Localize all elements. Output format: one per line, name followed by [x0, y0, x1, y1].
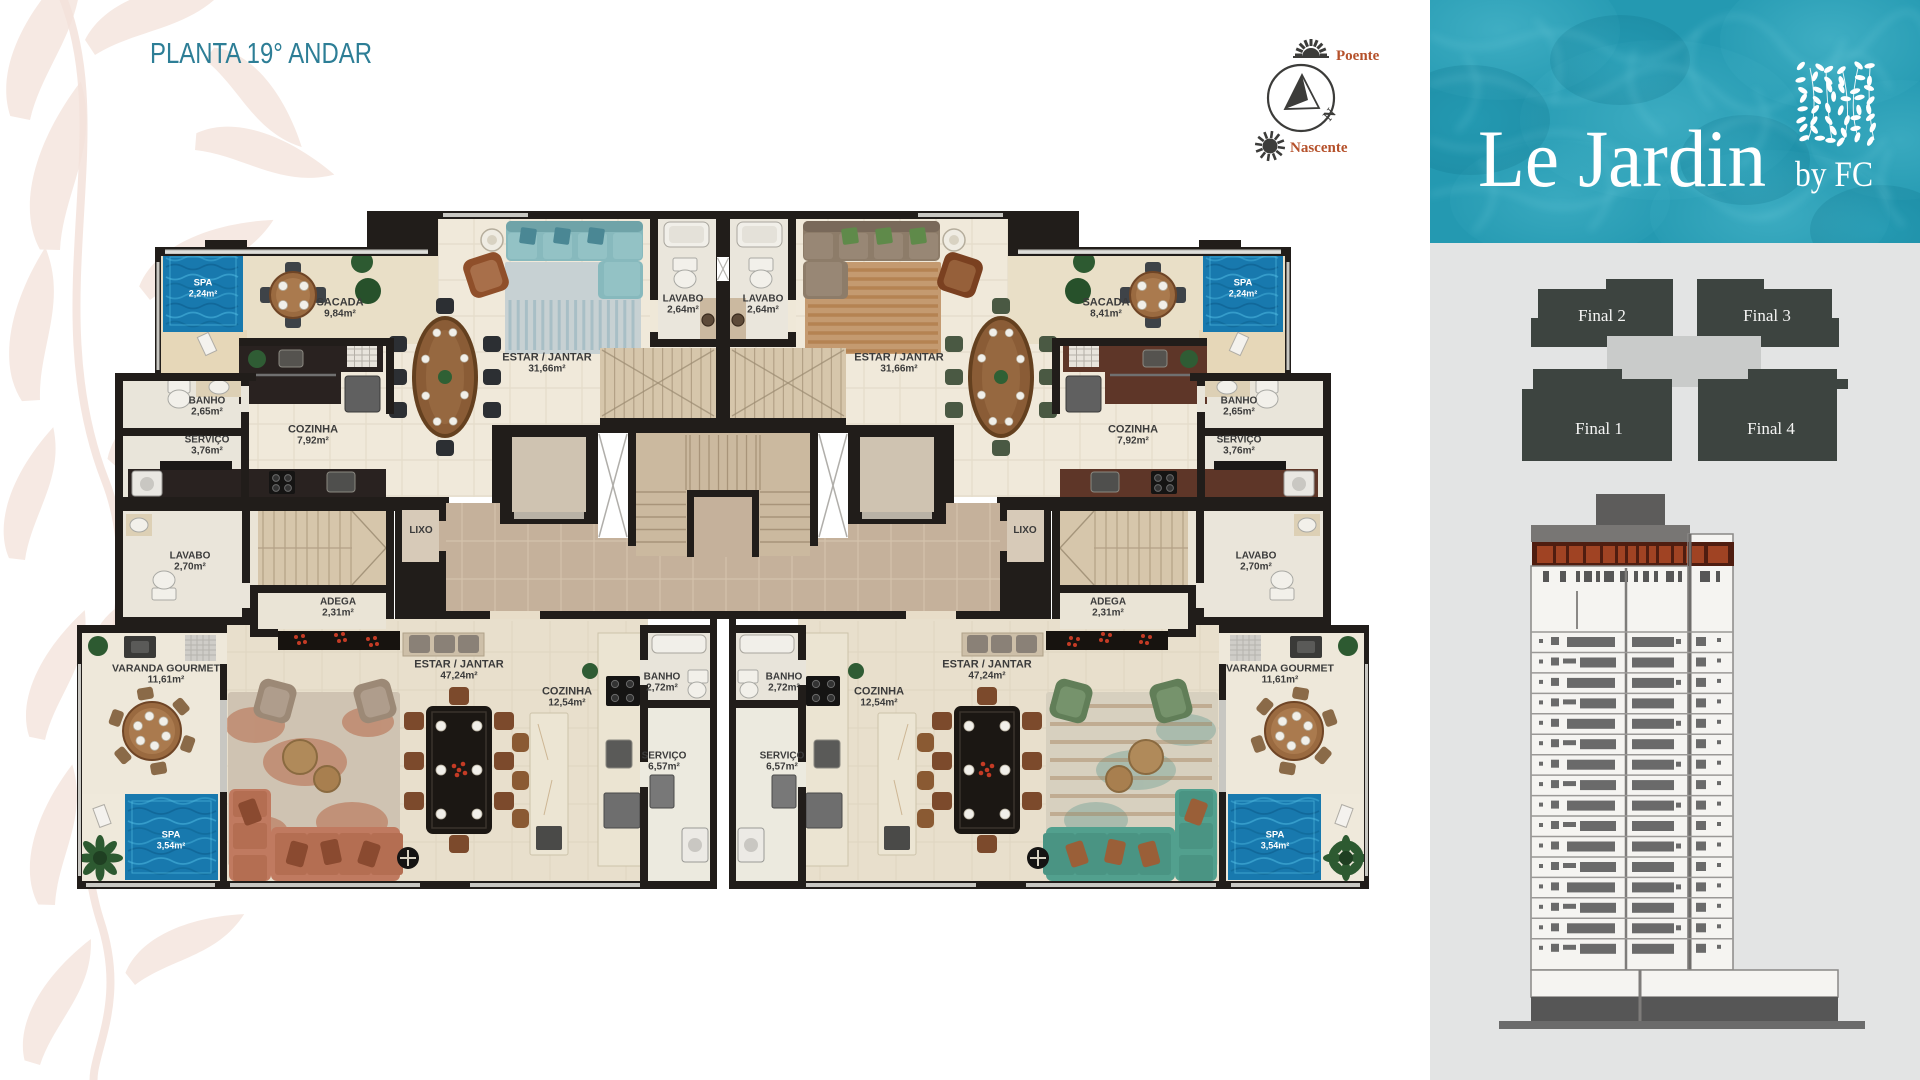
svg-text:SERVIÇO: SERVIÇO — [185, 435, 230, 446]
svg-text:SPA: SPA — [1234, 278, 1253, 289]
svg-text:2,72m²: 2,72m² — [768, 683, 800, 694]
svg-text:Final 4: Final 4 — [1747, 419, 1795, 438]
svg-text:SACADA: SACADA — [1082, 297, 1129, 309]
svg-text:VARANDA GOURMET: VARANDA GOURMET — [1226, 663, 1334, 675]
svg-text:12,54m²: 12,54m² — [860, 698, 898, 709]
svg-text:ESTAR / JANTAR: ESTAR / JANTAR — [502, 352, 591, 364]
svg-text:SACADA: SACADA — [316, 297, 363, 309]
svg-text:3,76m²: 3,76m² — [191, 446, 223, 457]
svg-text:ESTAR / JANTAR: ESTAR / JANTAR — [414, 659, 503, 671]
svg-text:3,76m²: 3,76m² — [1223, 446, 1255, 457]
svg-text:BANHO: BANHO — [189, 396, 226, 407]
svg-text:ESTAR / JANTAR: ESTAR / JANTAR — [942, 659, 1031, 671]
svg-text:Nascente: Nascente — [1290, 140, 1348, 156]
svg-text:by FC: by FC — [1795, 154, 1873, 194]
svg-text:ESTAR / JANTAR: ESTAR / JANTAR — [854, 352, 943, 364]
svg-text:3,54m²: 3,54m² — [157, 841, 186, 851]
svg-text:11,61m²: 11,61m² — [148, 675, 185, 686]
svg-text:SPA: SPA — [194, 278, 213, 289]
svg-text:ADEGA: ADEGA — [320, 597, 356, 608]
svg-text:2,31m²: 2,31m² — [322, 608, 354, 619]
svg-text:Final 3: Final 3 — [1743, 306, 1791, 325]
svg-text:COZINHA: COZINHA — [1108, 424, 1158, 436]
svg-text:31,66m²: 31,66m² — [880, 364, 918, 375]
svg-text:SPA: SPA — [1266, 830, 1285, 841]
svg-text:47,24m²: 47,24m² — [968, 671, 1006, 682]
svg-text:9,84m²: 9,84m² — [324, 309, 356, 320]
svg-text:BANHO: BANHO — [644, 672, 681, 683]
svg-text:VARANDA GOURMET: VARANDA GOURMET — [112, 663, 220, 675]
svg-text:Final 2: Final 2 — [1578, 306, 1626, 325]
svg-text:COZINHA: COZINHA — [288, 424, 338, 436]
svg-text:2,24m²: 2,24m² — [1229, 289, 1258, 299]
svg-text:ADEGA: ADEGA — [1090, 597, 1126, 608]
svg-text:12,54m²: 12,54m² — [548, 698, 586, 709]
svg-text:6,57m²: 6,57m² — [648, 762, 680, 773]
svg-text:7,92m²: 7,92m² — [297, 436, 329, 447]
svg-text:2,70m²: 2,70m² — [174, 562, 206, 573]
svg-text:LAVABO: LAVABO — [1236, 551, 1277, 562]
svg-text:Le Jardin: Le Jardin — [1478, 113, 1766, 204]
svg-text:LIXO: LIXO — [409, 525, 433, 536]
svg-text:PLANTA 19° ANDAR: PLANTA 19° ANDAR — [150, 38, 372, 70]
svg-text:8,41m²: 8,41m² — [1090, 309, 1122, 320]
svg-text:Poente: Poente — [1336, 48, 1380, 64]
svg-text:LAVABO: LAVABO — [743, 294, 784, 305]
svg-text:SERVIÇO: SERVIÇO — [642, 751, 687, 762]
svg-text:47,24m²: 47,24m² — [440, 671, 478, 682]
svg-text:LAVABO: LAVABO — [663, 294, 704, 305]
svg-text:BANHO: BANHO — [766, 672, 803, 683]
svg-text:Final 1: Final 1 — [1575, 419, 1623, 438]
svg-text:SERVIÇO: SERVIÇO — [1217, 435, 1262, 446]
svg-text:LAVABO: LAVABO — [170, 551, 211, 562]
svg-text:2,64m²: 2,64m² — [667, 305, 699, 316]
svg-text:LIXO: LIXO — [1013, 525, 1037, 536]
svg-text:2,24m²: 2,24m² — [189, 289, 218, 299]
svg-text:2,65m²: 2,65m² — [191, 407, 223, 418]
svg-text:2,72m²: 2,72m² — [646, 683, 678, 694]
svg-text:31,66m²: 31,66m² — [528, 364, 566, 375]
svg-text:2,31m²: 2,31m² — [1092, 608, 1124, 619]
svg-text:11,61m²: 11,61m² — [1262, 675, 1299, 686]
svg-text:2,64m²: 2,64m² — [747, 305, 779, 316]
svg-text:2,70m²: 2,70m² — [1240, 562, 1272, 573]
svg-text:6,57m²: 6,57m² — [766, 762, 798, 773]
svg-text:3,54m²: 3,54m² — [1261, 841, 1290, 851]
svg-text:COZINHA: COZINHA — [854, 686, 904, 698]
svg-text:7,92m²: 7,92m² — [1117, 436, 1149, 447]
svg-text:SERVIÇO: SERVIÇO — [760, 751, 805, 762]
svg-text:SPA: SPA — [162, 830, 181, 841]
svg-text:2,65m²: 2,65m² — [1223, 407, 1255, 418]
svg-text:COZINHA: COZINHA — [542, 686, 592, 698]
svg-text:BANHO: BANHO — [1221, 396, 1258, 407]
